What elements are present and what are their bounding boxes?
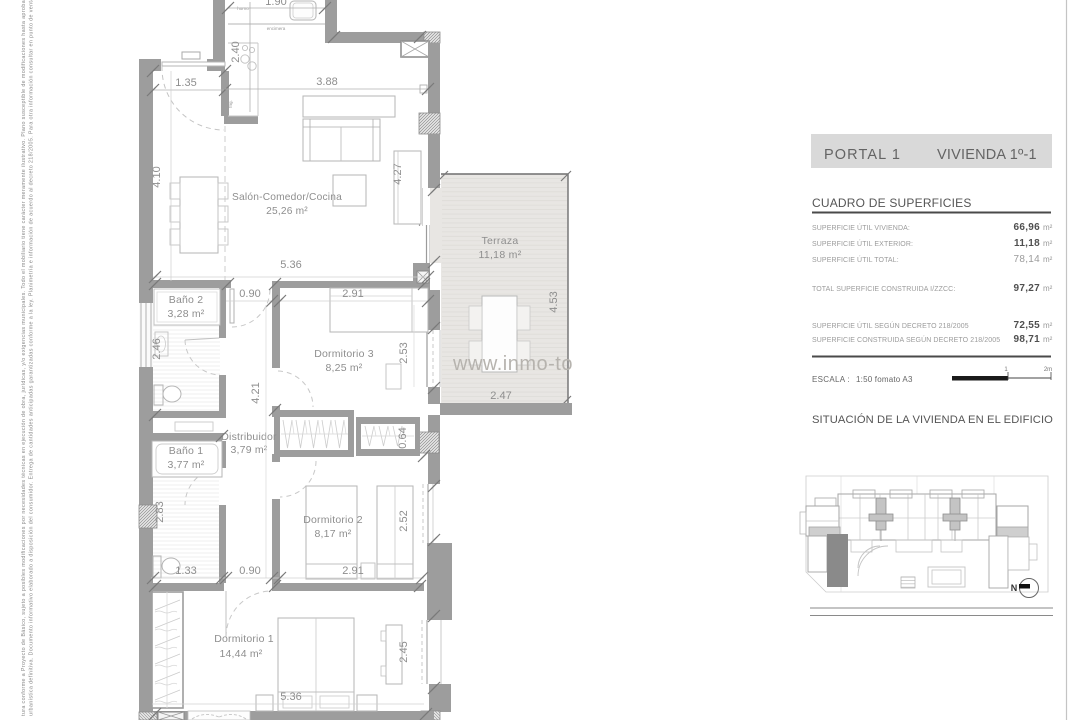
svg-text:5.36: 5.36 [280, 259, 301, 271]
svg-text:m²: m² [1043, 223, 1053, 232]
svg-text:m²: m² [1043, 255, 1053, 264]
svg-text:SUPERFICIE CONSTRUIDA SEGÚN DE: SUPERFICIE CONSTRUIDA SEGÚN DECRETO 218/… [812, 335, 1000, 344]
svg-text:78,14: 78,14 [1013, 254, 1040, 265]
svg-text:2m: 2m [1044, 367, 1052, 373]
svg-text:m²: m² [1043, 335, 1053, 344]
svg-text:1.35: 1.35 [175, 77, 196, 89]
svg-text:Salón-Comedor/Cocina: Salón-Comedor/Cocina [232, 192, 342, 203]
svg-text:97,27: 97,27 [1013, 283, 1040, 294]
svg-text:horno: horno [237, 6, 249, 11]
svg-text:72,55: 72,55 [1013, 320, 1040, 331]
svg-text:66,96: 66,96 [1013, 222, 1040, 233]
svg-text:SITUACIÓN DE LA VIVIENDA EN EL: SITUACIÓN DE LA VIVIENDA EN EL EDIFICIO [812, 413, 1053, 426]
svg-text:VIVIENDA 1º-1: VIVIENDA 1º-1 [937, 147, 1037, 163]
svg-text:CUADRO DE SUPERFICIES: CUADRO DE SUPERFICIES [812, 196, 972, 210]
svg-text:Dormitorio 1: Dormitorio 1 [214, 633, 274, 645]
svg-text:PORTAL 1: PORTAL 1 [824, 147, 901, 163]
svg-text:5.36: 5.36 [280, 691, 301, 703]
svg-text:14,44 m²: 14,44 m² [219, 648, 262, 660]
svg-text:2.83: 2.83 [154, 501, 166, 522]
svg-text:8,17 m²: 8,17 m² [315, 528, 352, 540]
svg-text:tura conforme a Proyecto de Bá: tura conforme a Proyecto de Básico, suje… [21, 0, 27, 716]
svg-text:1.33: 1.33 [175, 565, 196, 577]
svg-text:N: N [1011, 583, 1018, 593]
svg-text:2.91: 2.91 [342, 288, 363, 300]
svg-text:SUPERFICIE ÚTIL TOTAL:: SUPERFICIE ÚTIL TOTAL: [812, 255, 899, 264]
svg-text:3.88: 3.88 [316, 76, 337, 88]
svg-text:4.10: 4.10 [151, 166, 163, 187]
svg-text:11,18: 11,18 [1014, 238, 1040, 249]
svg-text:Dormitorio 2: Dormitorio 2 [303, 514, 363, 526]
svg-text:0.90: 0.90 [239, 565, 260, 577]
svg-text:2.40: 2.40 [230, 41, 242, 62]
svg-text:2.45: 2.45 [398, 641, 410, 662]
svg-text:urbanística definitiva. Docume: urbanística definitiva. Documento inform… [29, 0, 35, 716]
svg-text:4.53: 4.53 [548, 291, 560, 312]
svg-text:1.90: 1.90 [265, 0, 286, 8]
svg-text:Distribuidor: Distribuidor [221, 431, 277, 443]
svg-text:2.46: 2.46 [151, 338, 163, 359]
svg-text:4.27: 4.27 [392, 163, 404, 184]
svg-text:Dormitorio 3: Dormitorio 3 [314, 348, 374, 360]
svg-text:2.47: 2.47 [490, 390, 511, 402]
svg-text:2.91: 2.91 [342, 565, 363, 577]
svg-text:m²: m² [1043, 239, 1053, 248]
svg-text:SUPERFICIE ÚTIL SEGÚN DECRETO: SUPERFICIE ÚTIL SEGÚN DECRETO 218/2005 [812, 321, 969, 330]
svg-text:TOTAL SUPERFICIE CONSTRUIDA I/: TOTAL SUPERFICIE CONSTRUIDA I/ZZCC: [812, 286, 955, 293]
svg-text:3,79 m²: 3,79 m² [231, 444, 268, 456]
svg-text:3,28 m²: 3,28 m² [168, 308, 205, 320]
svg-text:m²: m² [1043, 284, 1053, 293]
svg-text:Baño 2: Baño 2 [169, 294, 203, 306]
svg-text:www.inmo-to: www.inmo-to [452, 353, 573, 375]
svg-text:98,71: 98,71 [1013, 334, 1040, 345]
svg-text:0.90: 0.90 [239, 288, 260, 300]
svg-text:0.64: 0.64 [397, 427, 409, 448]
svg-text:25,26 m²: 25,26 m² [266, 206, 308, 217]
svg-text:3,77 m²: 3,77 m² [168, 459, 205, 471]
svg-text:Terraza: Terraza [481, 235, 518, 247]
svg-text:SUPERFICIE ÚTIL VIVIENDA:: SUPERFICIE ÚTIL VIVIENDA: [812, 223, 910, 232]
svg-text:11,18 m²: 11,18 m² [478, 249, 521, 261]
svg-text:SUPERFICIE ÚTIL EXTERIOR:: SUPERFICIE ÚTIL EXTERIOR: [812, 239, 913, 248]
svg-text:Baño 1: Baño 1 [169, 445, 203, 457]
svg-text:4.21: 4.21 [250, 382, 262, 403]
svg-text:encimera: encimera [267, 26, 286, 31]
svg-text:frig.: frig. [228, 100, 233, 108]
svg-text:m²: m² [1043, 321, 1053, 330]
svg-text:2.52: 2.52 [398, 510, 410, 531]
svg-text:1:50 fomato A3: 1:50 fomato A3 [856, 375, 913, 384]
svg-text:ESCALA :: ESCALA : [812, 375, 850, 384]
svg-text:2.53: 2.53 [398, 342, 410, 363]
svg-text:8,25 m²: 8,25 m² [326, 362, 363, 374]
